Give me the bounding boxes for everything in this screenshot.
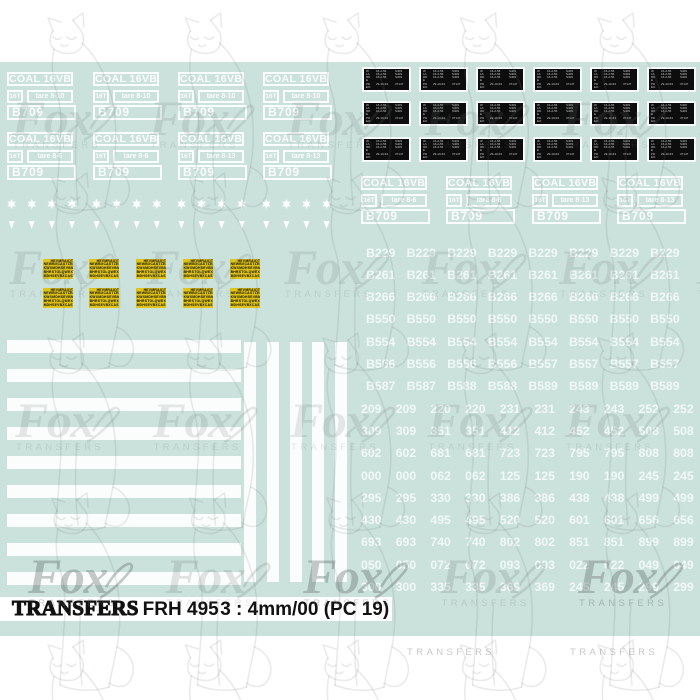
svg-text:Fox: Fox — [424, 90, 504, 146]
svg-text:Fox: Fox — [286, 90, 366, 146]
svg-text:Fox: Fox — [283, 239, 363, 295]
svg-text:Fox: Fox — [152, 392, 232, 448]
svg-text:TRANSFERS: TRANSFERS — [570, 647, 658, 658]
svg-text:TRANSFERS: TRANSFERS — [10, 289, 98, 300]
svg-text:TRANSFERS: TRANSFERS — [563, 140, 651, 151]
svg-text:TRANSFERS: TRANSFERS — [288, 140, 376, 151]
svg-text:Fox: Fox — [14, 392, 94, 448]
svg-text:TRANSFERS: TRANSFERS — [29, 598, 117, 609]
svg-text:TRANSFERS: TRANSFERS — [579, 598, 667, 609]
svg-text:Fox: Fox — [564, 392, 644, 448]
svg-text:Fox: Fox — [302, 548, 382, 604]
svg-text:Fox: Fox — [577, 548, 657, 604]
svg-text:TRANSFERS: TRANSFERS — [304, 598, 392, 609]
svg-text:Fox: Fox — [427, 392, 507, 448]
svg-text:Fox: Fox — [149, 90, 229, 146]
svg-text:Fox: Fox — [146, 239, 226, 295]
svg-text:Fox: Fox — [11, 90, 91, 146]
svg-text:Fox: Fox — [165, 548, 245, 604]
svg-text:TRANSFERS: TRANSFERS — [407, 647, 495, 658]
svg-text:Fox: Fox — [440, 548, 520, 604]
svg-text:TRANSFERS: TRANSFERS — [154, 442, 242, 453]
svg-text:TRANSFERS: TRANSFERS — [148, 289, 236, 300]
svg-text:TRANSFERS: TRANSFERS — [167, 598, 255, 609]
svg-text:TRANSFERS: TRANSFERS — [291, 442, 379, 453]
svg-text:TRANSFERS: TRANSFERS — [566, 442, 654, 453]
svg-text:Fox: Fox — [558, 239, 638, 295]
svg-text:TRANSFERS: TRANSFERS — [426, 140, 514, 151]
svg-text:TRANSFERS: TRANSFERS — [429, 442, 517, 453]
svg-text:TRANSFERS: TRANSFERS — [151, 140, 239, 151]
svg-text:TRANSFERS: TRANSFERS — [442, 598, 530, 609]
svg-text:Fox: Fox — [27, 548, 107, 604]
svg-text:Fox: Fox — [696, 239, 700, 295]
svg-text:TRANSFERS: TRANSFERS — [423, 289, 511, 300]
svg-text:Fox: Fox — [8, 239, 88, 295]
svg-text:TRANSFERS: TRANSFERS — [13, 140, 101, 151]
svg-text:TRANSFERS: TRANSFERS — [285, 289, 373, 300]
svg-text:Fox: Fox — [289, 392, 369, 448]
svg-text:Fox: Fox — [561, 90, 641, 146]
svg-text:TRANSFERS: TRANSFERS — [560, 289, 648, 300]
svg-text:TRANSFERS: TRANSFERS — [16, 442, 104, 453]
svg-text:Fox: Fox — [421, 239, 501, 295]
